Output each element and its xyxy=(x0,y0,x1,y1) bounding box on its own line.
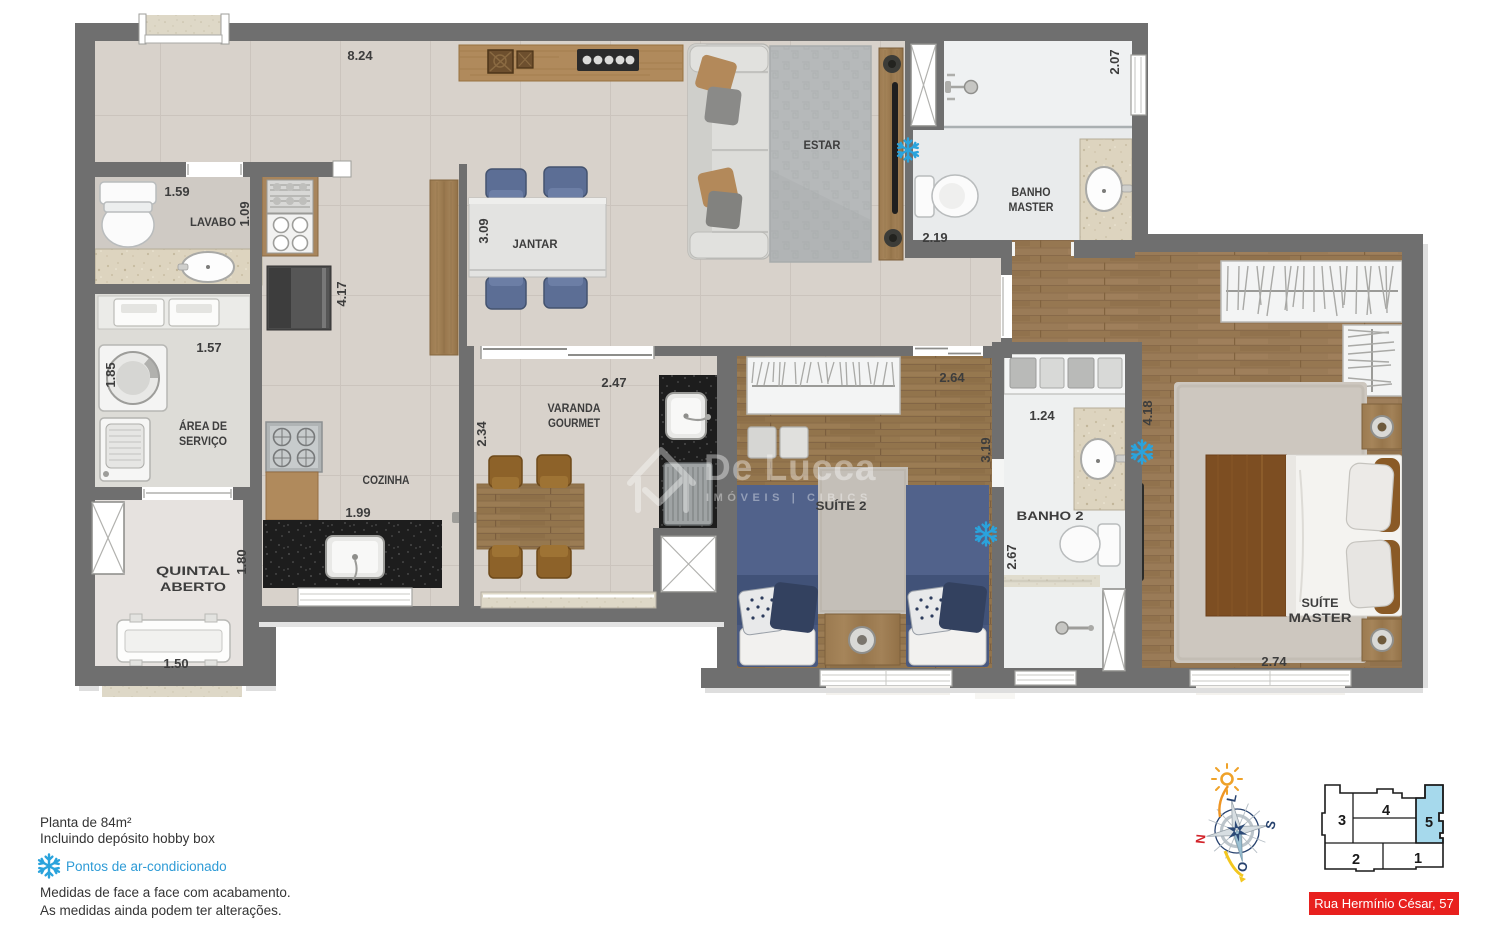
svg-text:N: N xyxy=(1193,833,1209,844)
svg-text:Planta de 84m²: Planta de 84m² xyxy=(40,815,132,830)
svg-text:3.09: 3.09 xyxy=(476,218,491,243)
svg-text:2.47: 2.47 xyxy=(601,375,626,390)
svg-text:ESTAR: ESTAR xyxy=(804,138,841,152)
svg-text:ABERTO: ABERTO xyxy=(160,580,226,594)
svg-text:8.24: 8.24 xyxy=(347,48,373,63)
svg-text:1.24: 1.24 xyxy=(1029,408,1055,423)
svg-text:2.64: 2.64 xyxy=(939,370,965,385)
svg-text:De Lucca: De Lucca xyxy=(704,447,877,488)
svg-text:1.99: 1.99 xyxy=(345,505,370,520)
svg-text:QUINTAL: QUINTAL xyxy=(156,564,231,578)
svg-text:Pontos de ar-condicionado: Pontos de ar-condicionado xyxy=(66,859,227,874)
svg-text:1.50: 1.50 xyxy=(163,656,188,671)
svg-text:5: 5 xyxy=(1425,815,1433,831)
svg-text:2.74: 2.74 xyxy=(1261,654,1287,669)
svg-text:Medidas de face a face com aca: Medidas de face a face com acabamento. xyxy=(40,885,291,900)
svg-text:GOURMET: GOURMET xyxy=(548,416,600,430)
svg-text:4.17: 4.17 xyxy=(334,281,349,306)
svg-text:1.09: 1.09 xyxy=(237,201,252,226)
svg-text:4: 4 xyxy=(1382,803,1390,819)
svg-text:ÁREA DE: ÁREA DE xyxy=(179,418,227,433)
svg-text:Rua Hermínio César, 57: Rua Hermínio César, 57 xyxy=(1314,896,1453,911)
svg-text:3: 3 xyxy=(1338,813,1346,829)
svg-text:SERVIÇO: SERVIÇO xyxy=(179,434,227,448)
svg-text:1: 1 xyxy=(1414,851,1422,867)
svg-text:MASTER: MASTER xyxy=(1289,611,1352,625)
svg-text:LAVABO: LAVABO xyxy=(190,215,236,229)
svg-text:2.19: 2.19 xyxy=(922,230,947,245)
svg-text:1.59: 1.59 xyxy=(164,184,189,199)
svg-text:Incluindo depósito hobby box: Incluindo depósito hobby box xyxy=(40,831,215,846)
svg-text:1.57: 1.57 xyxy=(196,340,221,355)
svg-text:SUÍTE: SUÍTE xyxy=(1302,595,1339,610)
svg-text:COZINHA: COZINHA xyxy=(363,473,410,487)
svg-text:IMÓVEIS | CIBICS: IMÓVEIS | CIBICS xyxy=(706,491,872,504)
svg-text:1.85: 1.85 xyxy=(103,362,118,387)
svg-text:2.67: 2.67 xyxy=(1004,544,1019,569)
svg-text:As medidas ainda podem ter alt: As medidas ainda podem ter alterações. xyxy=(40,903,282,918)
svg-text:1.80: 1.80 xyxy=(234,549,249,574)
svg-text:BANHO: BANHO xyxy=(1012,185,1051,199)
svg-text:2.34: 2.34 xyxy=(474,421,489,447)
svg-text:MASTER: MASTER xyxy=(1009,200,1054,214)
svg-text:BANHO 2: BANHO 2 xyxy=(1017,509,1084,523)
svg-text:2: 2 xyxy=(1352,852,1360,868)
svg-text:2.07: 2.07 xyxy=(1107,49,1122,74)
svg-text:4.18: 4.18 xyxy=(1140,400,1155,425)
svg-text:3.19: 3.19 xyxy=(978,437,993,462)
svg-text:VARANDA: VARANDA xyxy=(548,401,601,415)
svg-text:JANTAR: JANTAR xyxy=(513,237,558,251)
